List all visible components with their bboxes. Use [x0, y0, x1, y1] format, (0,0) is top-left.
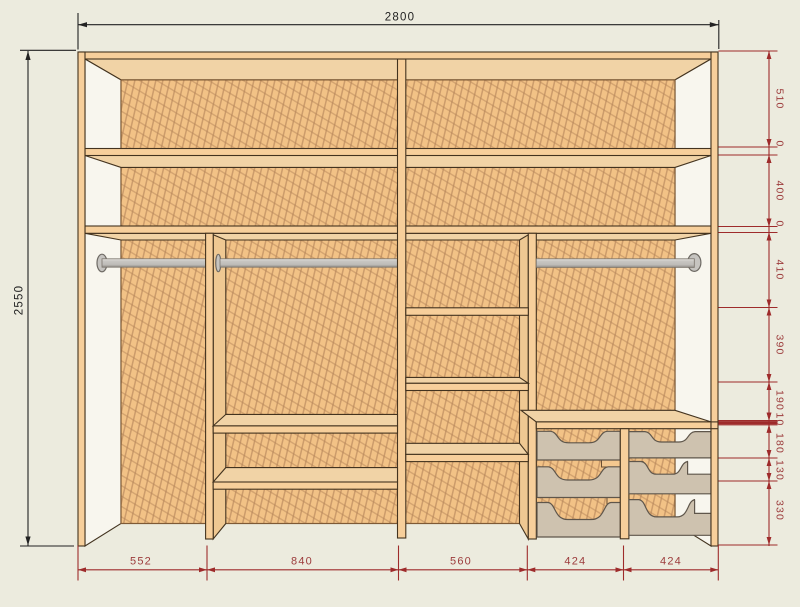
svg-text:10: 10	[774, 412, 786, 426]
svg-text:390: 390	[774, 334, 786, 355]
svg-text:190: 190	[774, 390, 786, 411]
svg-text:424: 424	[564, 556, 586, 568]
svg-text:2800: 2800	[385, 12, 415, 24]
svg-text:0: 0	[774, 140, 786, 147]
svg-text:510: 510	[774, 88, 786, 109]
svg-text:2550: 2550	[14, 285, 26, 315]
svg-text:552: 552	[130, 556, 152, 568]
svg-text:0: 0	[774, 220, 786, 227]
svg-text:410: 410	[774, 259, 786, 280]
svg-text:400: 400	[774, 180, 786, 201]
svg-text:840: 840	[291, 556, 313, 568]
svg-text:130: 130	[774, 460, 786, 481]
svg-text:424: 424	[660, 556, 682, 568]
svg-text:330: 330	[774, 500, 786, 521]
svg-text:180: 180	[774, 433, 786, 454]
svg-text:560: 560	[450, 556, 472, 568]
